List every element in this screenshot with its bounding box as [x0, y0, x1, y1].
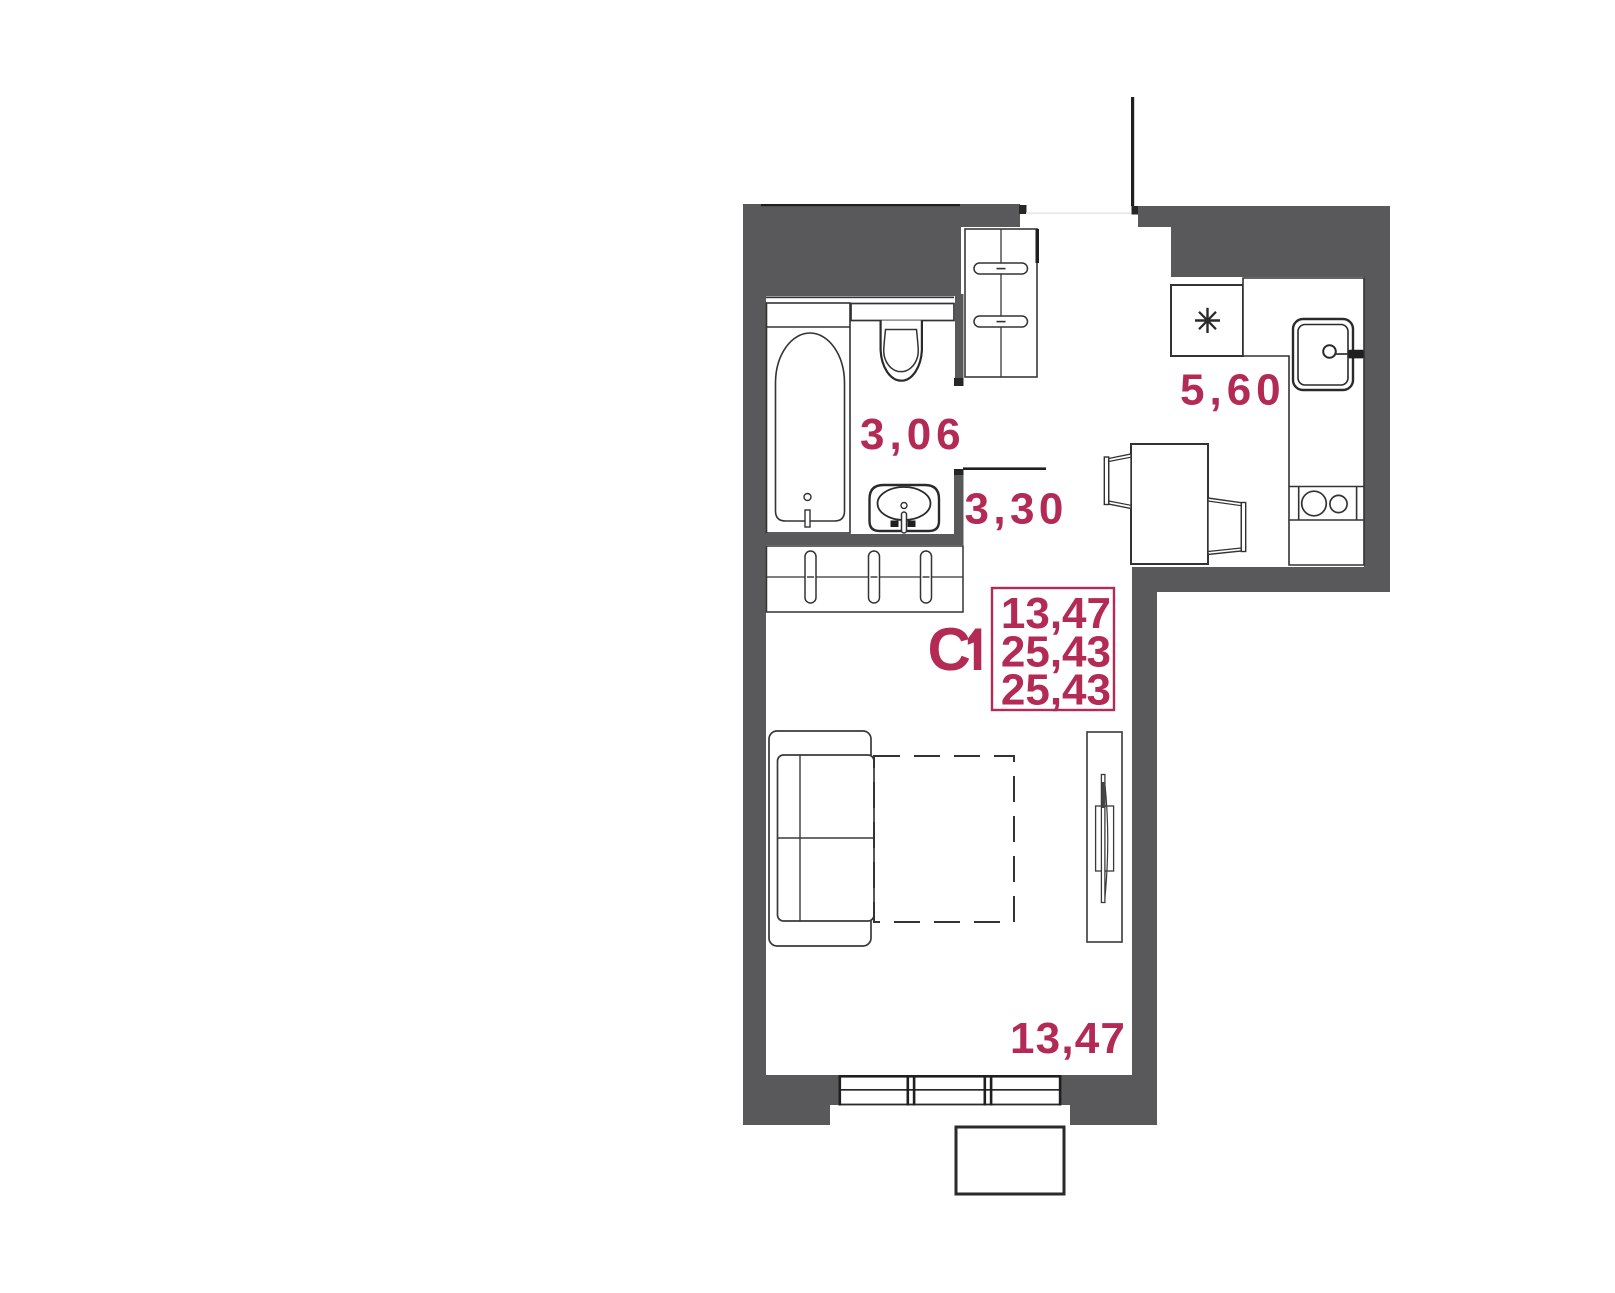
svg-text:3,06: 3,06 — [860, 410, 966, 459]
svg-text:C: C — [928, 616, 971, 683]
svg-text:13,47: 13,47 — [1010, 1014, 1126, 1063]
svg-text:5,60: 5,60 — [1180, 366, 1286, 415]
svg-text:25,43: 25,43 — [1001, 666, 1111, 715]
svg-text:3,30: 3,30 — [965, 485, 1068, 534]
